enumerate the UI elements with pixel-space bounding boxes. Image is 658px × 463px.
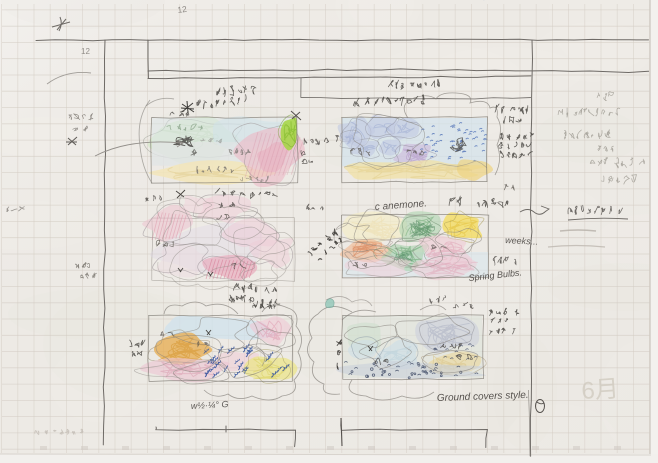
svg-text:w½·¼° G: w½·¼° G xyxy=(191,399,229,411)
svg-text:12: 12 xyxy=(81,47,90,56)
svg-text:12: 12 xyxy=(177,4,188,15)
svg-text:weeks...: weeks... xyxy=(505,235,538,247)
svg-text:6月: 6月 xyxy=(581,375,620,405)
